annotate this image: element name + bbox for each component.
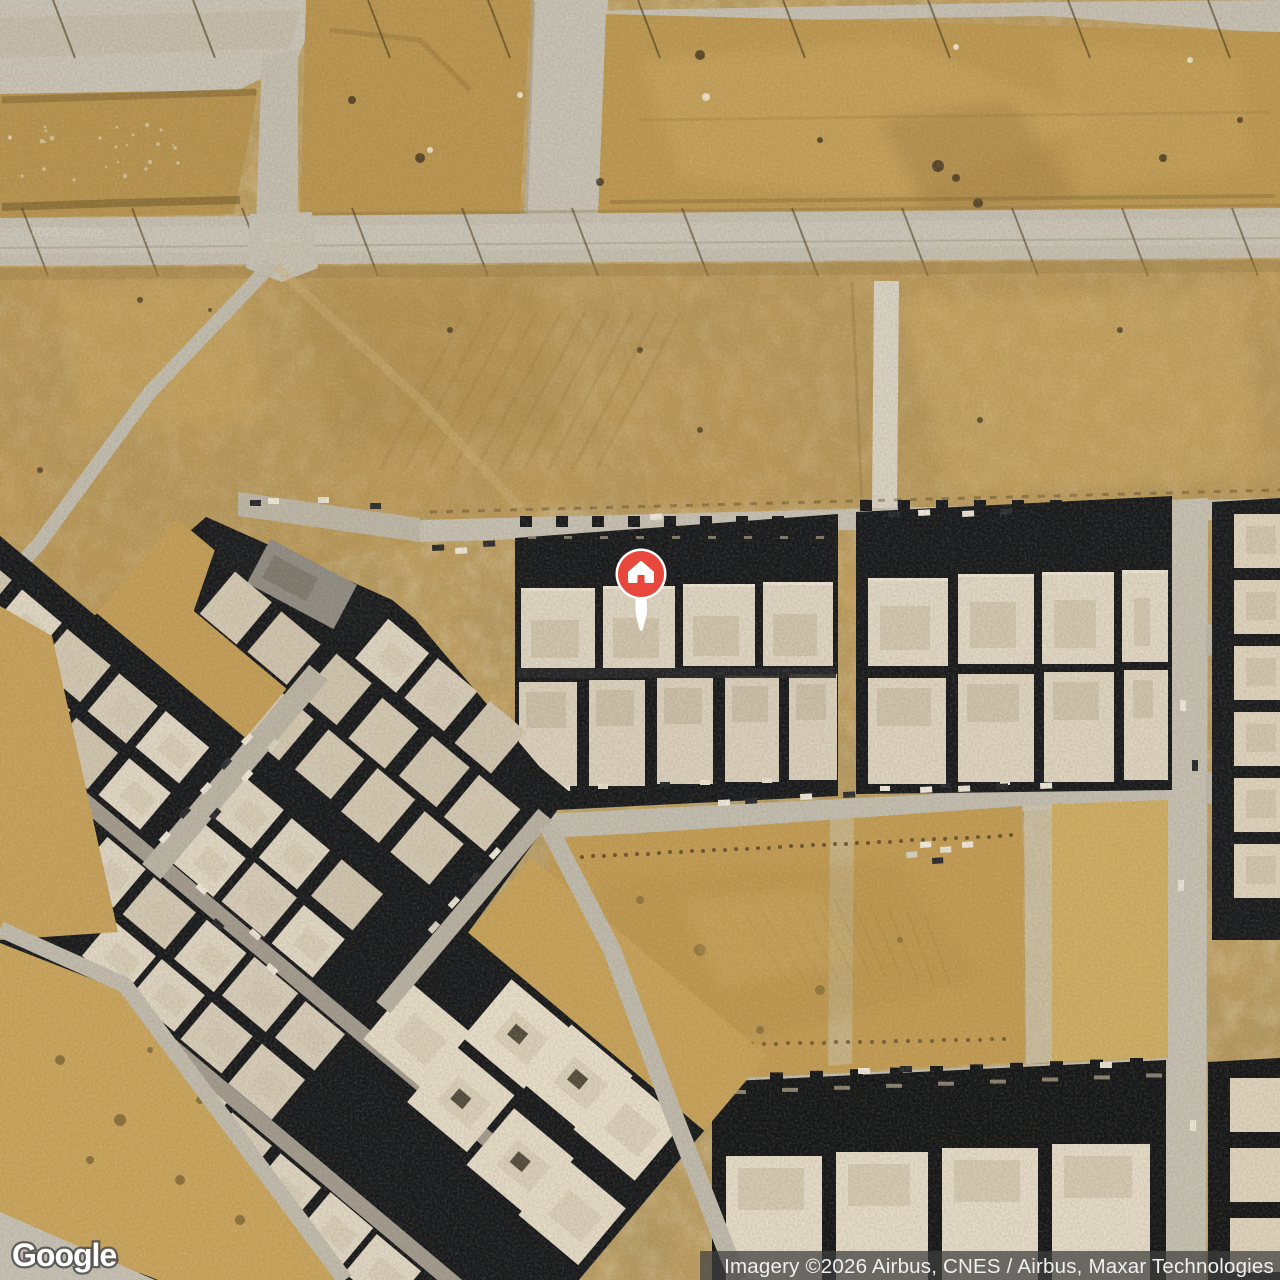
svg-text:Google: Google [12,1237,116,1273]
svg-text:Imagery ©2026 Airbus, CNES / A: Imagery ©2026 Airbus, CNES / Airbus, Max… [724,1255,1274,1278]
